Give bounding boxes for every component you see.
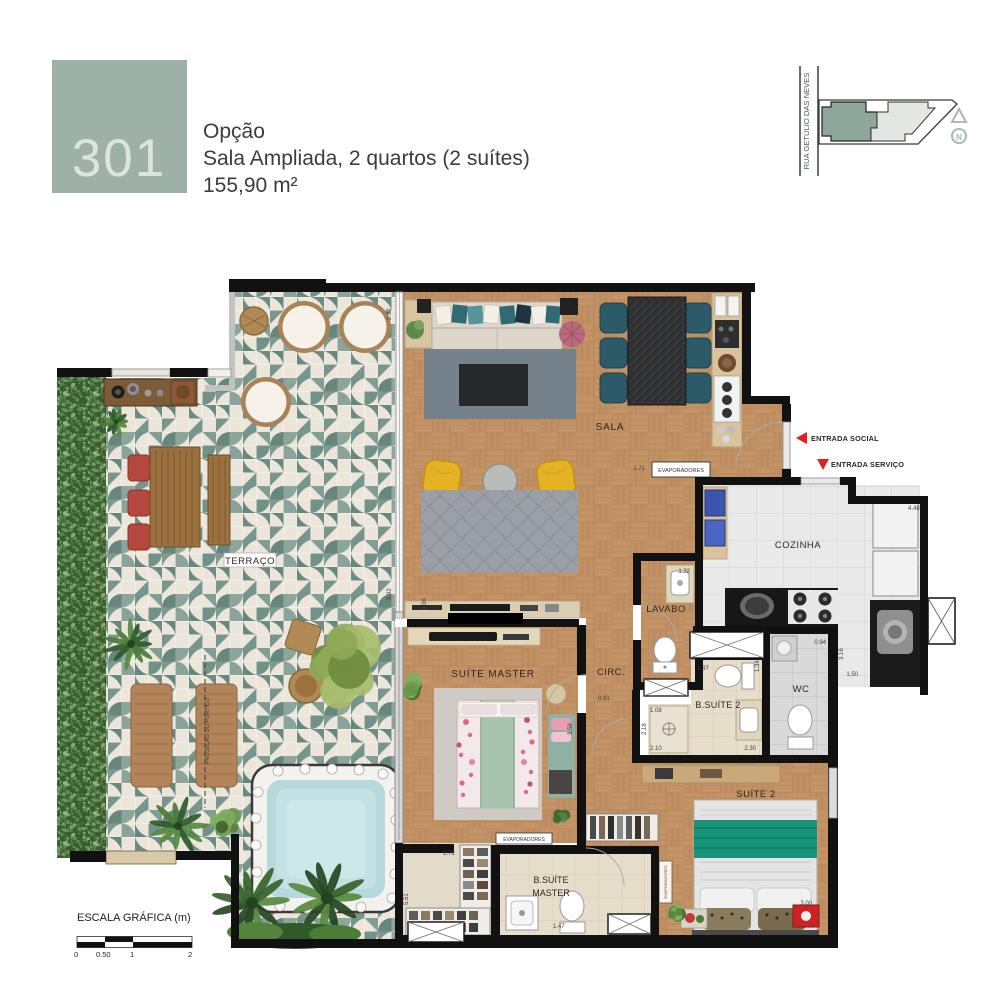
svg-text:0: 0 [74,950,78,959]
svg-text:2.10: 2.10 [650,746,662,752]
svg-text:CIRC.: CIRC. [597,667,625,678]
svg-text:WC: WC [793,684,810,695]
svg-text:SUÍTE 2: SUÍTE 2 [736,789,775,800]
svg-text:0.94: 0.94 [814,640,826,646]
svg-text:1: 1 [130,950,134,959]
svg-text:4.48: 4.48 [908,506,920,512]
svg-text:1.73: 1.73 [443,851,455,857]
svg-text:1.32: 1.32 [678,569,690,575]
svg-text:MASTER: MASTER [532,888,570,898]
svg-text:LAVABO: LAVABO [646,604,686,615]
svg-text:ENTRADA SOCIAL: ENTRADA SOCIAL [811,434,879,443]
svg-text:1.08: 1.08 [650,708,662,714]
svg-text:0.91: 0.91 [598,696,610,702]
svg-text:1.34: 1.34 [755,660,761,672]
svg-text:1.71: 1.71 [633,466,645,472]
svg-text:Sala Ampliada, 2 quartos (2 su: Sala Ampliada, 2 quartos (2 suítes) [203,147,530,170]
svg-text:0.50: 0.50 [96,950,111,959]
svg-text:301: 301 [72,129,166,188]
svg-text:SALA: SALA [596,422,625,433]
svg-text:1.47: 1.47 [553,924,565,930]
svg-text:B.SUÍTE: B.SUÍTE [533,875,568,885]
svg-text:COZINHA: COZINHA [775,540,821,551]
svg-text:3.58: 3.58 [568,723,574,735]
svg-text:4.36: 4.36 [422,598,428,610]
svg-text:ENTRADA SERVIÇO: ENTRADA SERVIÇO [831,460,904,469]
svg-text:1.37: 1.37 [697,666,709,672]
svg-text:N: N [956,132,962,142]
svg-text:2: 2 [188,950,192,959]
svg-text:5.92: 5.92 [387,588,393,600]
svg-text:SUÍTE MASTER: SUÍTE MASTER [451,667,535,680]
svg-text:5.51: 5.51 [404,893,410,905]
svg-text:RUA GETÚLIO DAS NEVES: RUA GETÚLIO DAS NEVES [802,73,811,170]
svg-text:3.00: 3.00 [800,901,812,907]
svg-text:PROJEÇÃO DO PÓRTICO: PROJEÇÃO DO PÓRTICO [204,697,211,764]
svg-text:ESCALA GRÁFICA (m): ESCALA GRÁFICA (m) [77,911,191,924]
svg-text:Opção: Opção [203,120,265,143]
svg-text:2.30: 2.30 [744,746,756,752]
svg-text:EVAPORADORES: EVAPORADORES [663,865,668,899]
svg-text:3.16: 3.16 [839,648,845,660]
svg-text:2.18: 2.18 [642,723,648,735]
svg-text:B.SUÍTE 2: B.SUÍTE 2 [695,700,740,710]
svg-text:2.92: 2.92 [387,308,393,320]
svg-text:EVAPORADORES: EVAPORADORES [658,468,704,474]
svg-text:1.50: 1.50 [846,672,858,678]
svg-text:155,90 m²: 155,90 m² [203,174,298,197]
svg-text:EVAPORADORES: EVAPORADORES [503,837,545,843]
svg-text:TERRAÇO: TERRAÇO [225,556,275,567]
